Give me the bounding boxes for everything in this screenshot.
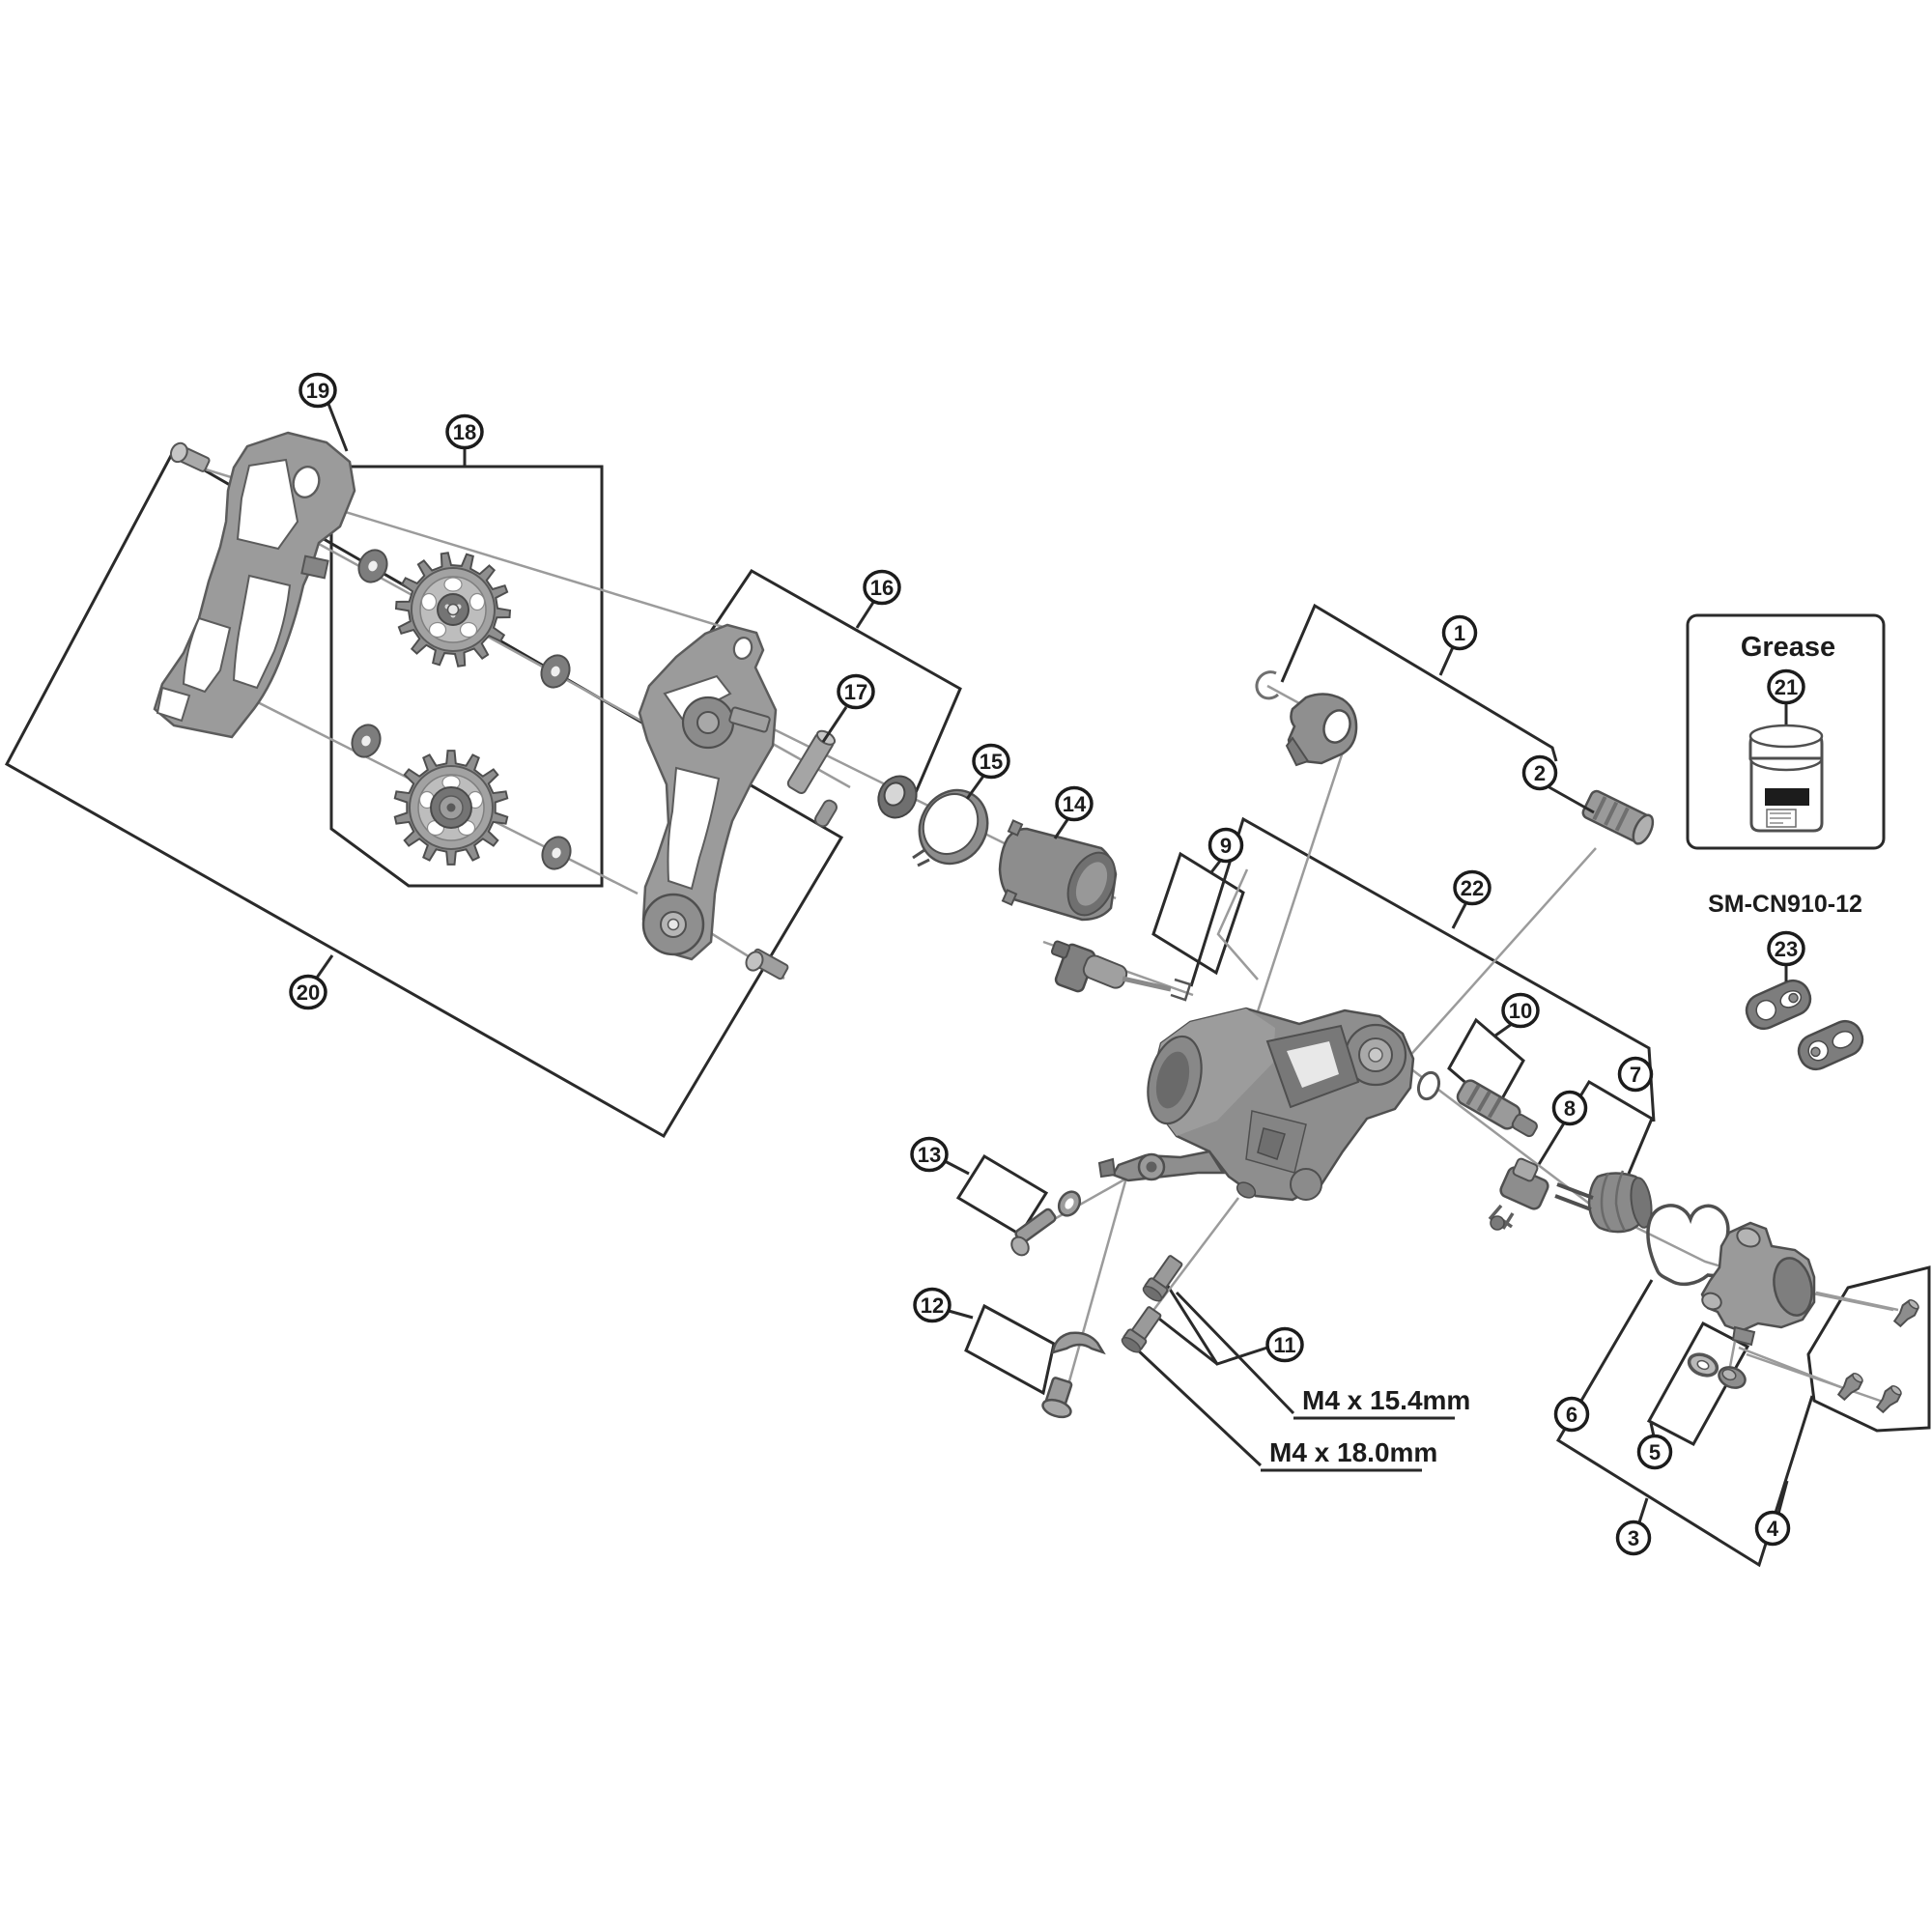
svg-text:1: 1: [1454, 621, 1465, 645]
svg-text:19: 19: [306, 379, 329, 403]
svg-text:M4 x 15.4mm: M4 x 15.4mm: [1302, 1385, 1470, 1415]
svg-text:12: 12: [921, 1293, 944, 1318]
svg-text:6: 6: [1566, 1403, 1577, 1427]
svg-text:16: 16: [870, 576, 894, 600]
svg-text:2: 2: [1534, 761, 1546, 785]
svg-text:9: 9: [1220, 834, 1232, 858]
svg-text:8: 8: [1564, 1096, 1576, 1121]
svg-text:5: 5: [1649, 1440, 1661, 1464]
svg-text:3: 3: [1628, 1526, 1639, 1550]
svg-text:21: 21: [1775, 675, 1798, 699]
svg-text:11: 11: [1273, 1333, 1295, 1357]
svg-text:10: 10: [1509, 999, 1532, 1023]
svg-text:7: 7: [1630, 1063, 1641, 1087]
svg-text:13: 13: [918, 1143, 941, 1167]
svg-text:4: 4: [1767, 1517, 1779, 1541]
svg-text:20: 20: [297, 980, 320, 1005]
svg-text:18: 18: [453, 420, 476, 444]
svg-text:15: 15: [980, 750, 1003, 774]
svg-text:Grease: Grease: [1741, 632, 1835, 663]
svg-text:14: 14: [1063, 792, 1087, 816]
svg-text:M4 x 18.0mm: M4 x 18.0mm: [1269, 1437, 1437, 1467]
svg-text:SM-CN910-12: SM-CN910-12: [1708, 891, 1862, 918]
svg-text:23: 23: [1775, 937, 1798, 961]
svg-text:22: 22: [1461, 876, 1484, 900]
svg-text:17: 17: [844, 680, 867, 704]
